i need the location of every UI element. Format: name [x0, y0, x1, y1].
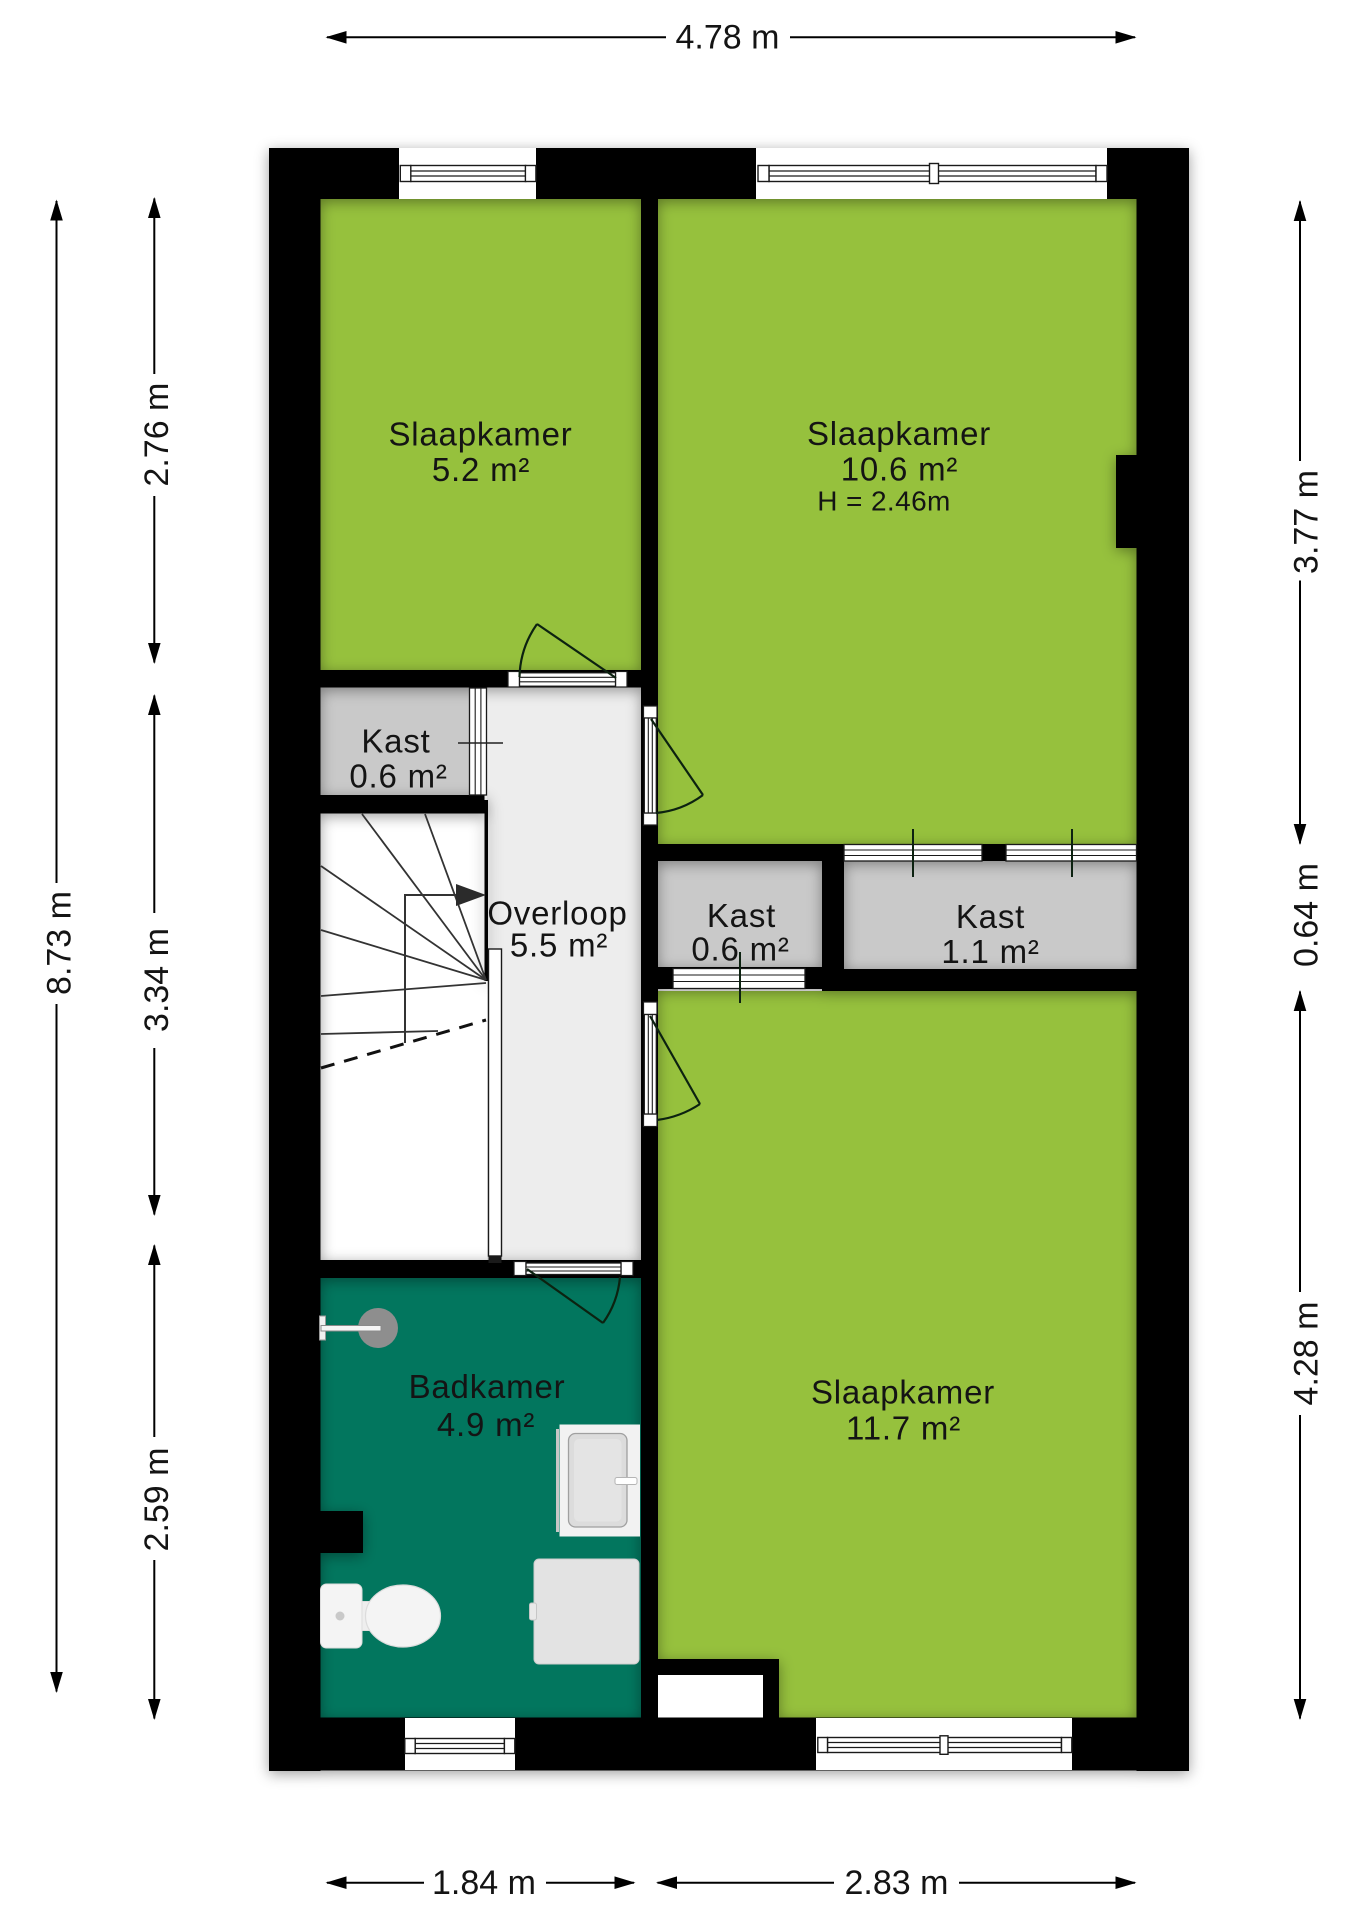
svg-text:Kast: Kast: [956, 898, 1025, 935]
svg-text:8.73 m: 8.73 m: [41, 891, 79, 995]
svg-text:Kast: Kast: [707, 897, 776, 934]
svg-text:5.5 m²: 5.5 m²: [510, 927, 608, 964]
svg-text:H = 2.46m: H = 2.46m: [817, 486, 951, 517]
svg-text:4.28 m: 4.28 m: [1288, 1302, 1326, 1406]
svg-text:2.83 m: 2.83 m: [845, 1864, 949, 1902]
svg-text:0.6 m²: 0.6 m²: [349, 758, 447, 795]
svg-text:2.76 m: 2.76 m: [138, 383, 176, 487]
svg-text:4.78 m: 4.78 m: [676, 19, 780, 57]
svg-text:11.7 m²: 11.7 m²: [846, 1410, 961, 1447]
svg-text:Kast: Kast: [361, 723, 430, 760]
svg-text:0.64 m: 0.64 m: [1288, 863, 1326, 967]
svg-text:10.6 m²: 10.6 m²: [841, 451, 958, 488]
svg-text:0.6 m²: 0.6 m²: [691, 931, 789, 968]
svg-text:4.9 m²: 4.9 m²: [437, 1406, 535, 1443]
svg-text:Slaapkamer: Slaapkamer: [388, 416, 572, 453]
svg-text:1.84 m: 1.84 m: [432, 1864, 536, 1902]
svg-text:Slaapkamer: Slaapkamer: [807, 415, 991, 452]
svg-text:Badkamer: Badkamer: [409, 1368, 566, 1405]
svg-text:5.2 m²: 5.2 m²: [432, 451, 530, 488]
svg-text:2.59 m: 2.59 m: [138, 1448, 176, 1552]
svg-text:3.34 m: 3.34 m: [138, 928, 176, 1032]
svg-text:1.1 m²: 1.1 m²: [941, 933, 1039, 970]
svg-text:3.77 m: 3.77 m: [1288, 470, 1326, 574]
svg-text:Slaapkamer: Slaapkamer: [811, 1374, 995, 1411]
